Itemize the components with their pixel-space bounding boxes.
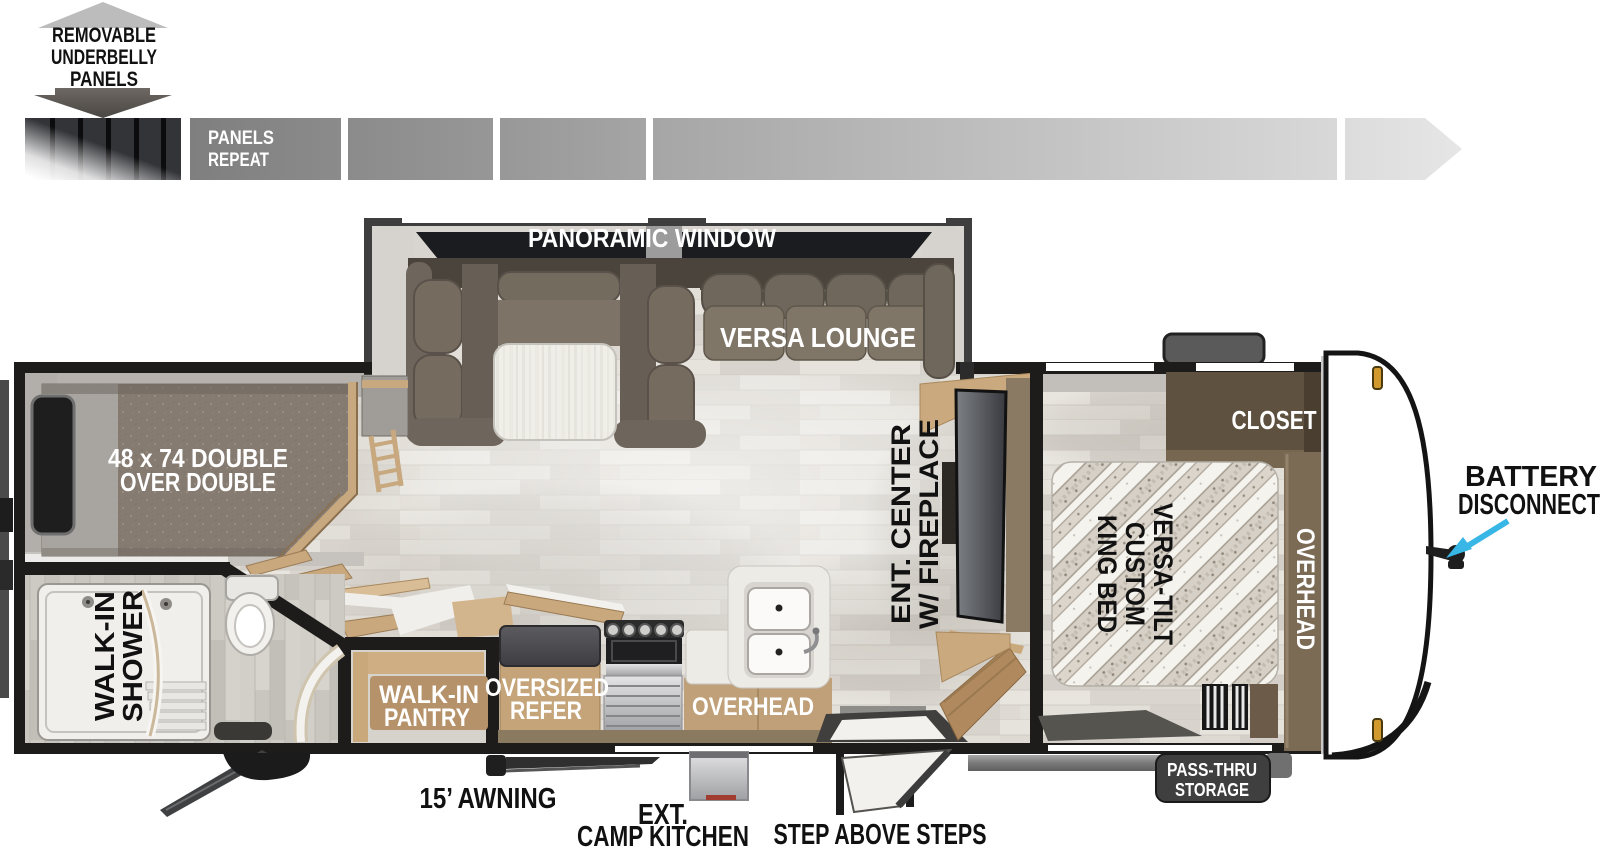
svg-text:15’ AWNING: 15’ AWNING — [420, 783, 557, 815]
svg-text:REFER: REFER — [510, 697, 582, 725]
svg-text:PASS-THRU: PASS-THRU — [1167, 760, 1257, 780]
svg-text:UNDERBELLY: UNDERBELLY — [51, 46, 157, 69]
svg-text:OVERHEAD: OVERHEAD — [1291, 528, 1319, 650]
svg-text:SHOWER: SHOWER — [117, 590, 148, 722]
svg-text:VERSA LOUNGE: VERSA LOUNGE — [720, 322, 916, 353]
svg-text:REMOVABLE: REMOVABLE — [52, 24, 156, 47]
svg-text:CUSTOM: CUSTOM — [1120, 522, 1150, 626]
svg-text:STORAGE: STORAGE — [1175, 780, 1249, 800]
svg-text:PANTRY: PANTRY — [384, 704, 470, 732]
svg-text:PANELS: PANELS — [70, 68, 138, 91]
svg-text:REPEAT: REPEAT — [208, 150, 269, 171]
svg-text:STEP ABOVE STEPS: STEP ABOVE STEPS — [774, 819, 987, 848]
svg-text:PANORAMIC WINDOW: PANORAMIC WINDOW — [528, 223, 776, 253]
svg-text:PANELS: PANELS — [208, 128, 274, 149]
svg-text:VERSA-TILT: VERSA-TILT — [1148, 503, 1178, 645]
svg-text:KING BED: KING BED — [1092, 515, 1122, 633]
svg-text:OVERHEAD: OVERHEAD — [692, 693, 814, 721]
svg-text:CAMP KITCHEN: CAMP KITCHEN — [577, 821, 749, 848]
svg-text:DISCONNECT: DISCONNECT — [1458, 489, 1600, 521]
svg-text:ENT. CENTER: ENT. CENTER — [886, 424, 916, 624]
svg-text:WALK-IN: WALK-IN — [89, 591, 120, 721]
svg-text:CLOSET: CLOSET — [1232, 405, 1317, 435]
svg-text:OVER DOUBLE: OVER DOUBLE — [120, 467, 276, 497]
svg-text:W/ FIREPLACE: W/ FIREPLACE — [914, 419, 944, 629]
